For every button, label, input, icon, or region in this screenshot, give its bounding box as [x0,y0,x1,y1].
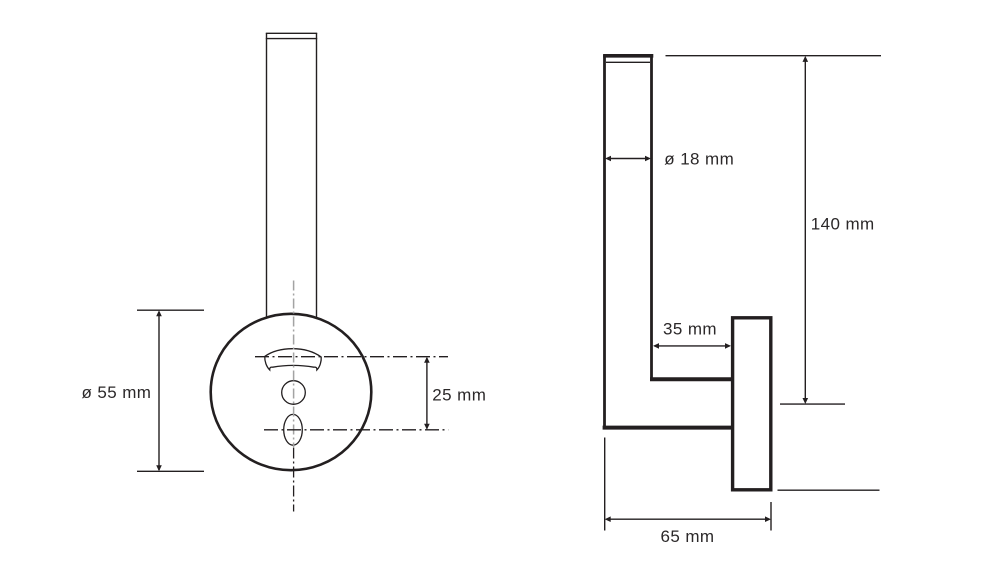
svg-text:ø 18 mm: ø 18 mm [664,150,734,169]
svg-text:65 mm: 65 mm [661,527,715,546]
svg-text:ø 55 mm: ø 55 mm [82,383,152,402]
svg-text:140 mm: 140 mm [811,215,875,234]
svg-text:25 mm: 25 mm [432,386,486,405]
svg-text:35 mm: 35 mm [663,320,717,339]
